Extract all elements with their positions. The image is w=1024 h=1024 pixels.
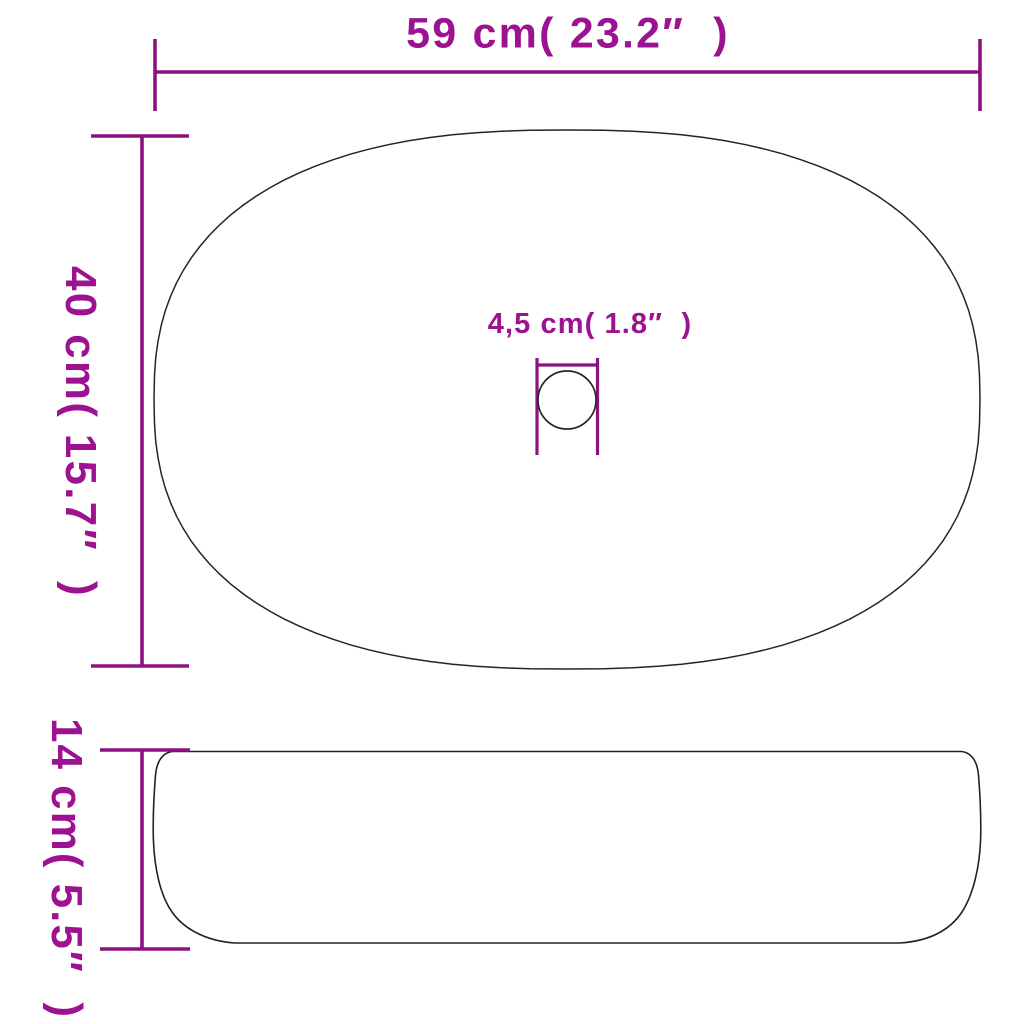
svg-text:4,5 cm( 1.8″ ): 4,5 cm( 1.8″ )	[488, 308, 692, 340]
svg-text:59 cm( 23.2″ ): 59 cm( 23.2″ )	[406, 10, 730, 58]
svg-text:40 cm( 15.7″ ): 40 cm( 15.7″ )	[56, 266, 105, 598]
svg-text:14 cm( 5.5″ ): 14 cm( 5.5″ )	[42, 718, 91, 1019]
